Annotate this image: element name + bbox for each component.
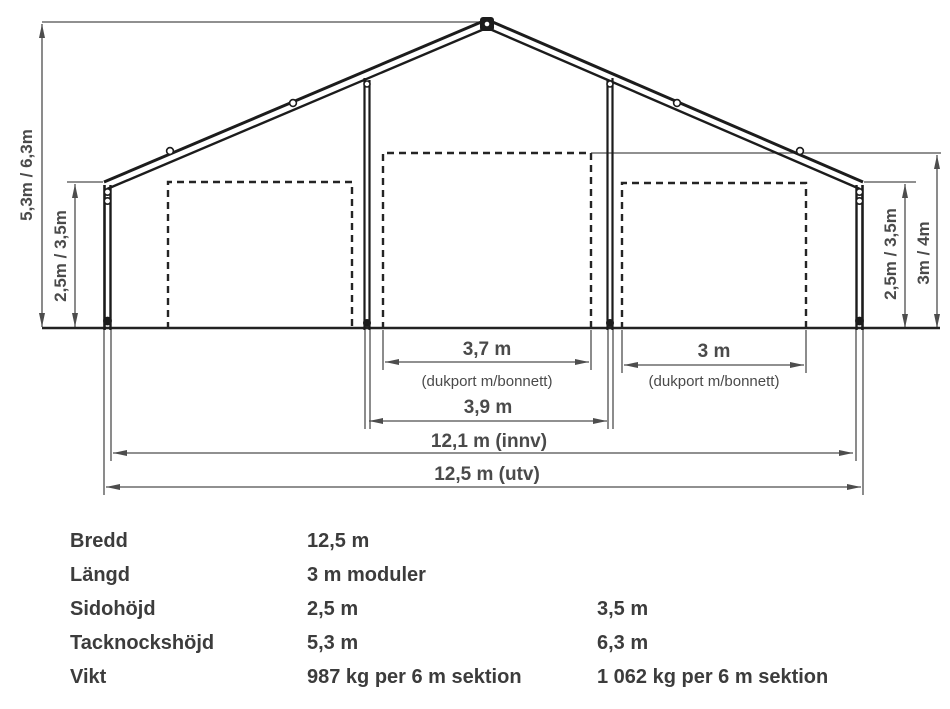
bolt-icon [856,198,862,204]
spec-row-langd: Längd 3 m moduler [70,558,950,592]
dim-label-side-height-left: 2,5m / 3,5m [51,210,70,302]
dim-label-door-height-right: 3m / 4m [914,221,933,284]
base-joint-icon [364,320,370,326]
base-joint-icon [856,317,863,324]
truss-frame [104,17,863,330]
dim-label-ridge-height: 5,3m / 6,3m [17,129,36,221]
spec-value-secondary: 1 062 kg per 6 m sektion [597,660,950,694]
right-wall-post [857,185,863,330]
spec-value-primary: 3 m moduler [307,558,597,592]
dim-label-inner-width: 12,1 m (innv) [431,431,547,452]
ridge-joint [480,17,494,31]
left-interior-post [365,78,370,330]
left-wall-post [105,185,111,330]
spec-row-bredd: Bredd 12,5 m [70,524,950,558]
right-door-opening [622,183,806,329]
spec-label: Längd [70,558,307,592]
spec-value-primary: 12,5 m [307,524,597,558]
center-door-opening [383,153,591,329]
bolt-icon [364,81,370,87]
spec-label: Bredd [70,524,307,558]
spec-value-primary: 5,3 m [307,626,597,660]
bolt-icon [797,148,804,155]
right-interior-post [608,78,613,330]
bolt-icon [607,81,613,87]
dim-label-outer-width: 12,5 m (utv) [434,464,540,485]
spec-value-secondary: 6,3 m [597,626,950,660]
bolt-icon [674,100,681,107]
base-joint-icon [104,317,111,324]
bolt-icon [167,148,174,155]
base-joint-icon [607,320,613,326]
dim-label-side-height-right: 2,5m / 3,5m [881,208,900,300]
joint-bolts [104,81,863,326]
spec-row-sidohojd: Sidohöjd 2,5 m 3,5 m [70,592,950,626]
bolt-icon [856,189,862,195]
spec-value-primary: 987 kg per 6 m sektion [307,660,597,694]
dim-note-center-door: (dukport m/bonnett) [422,373,553,390]
spec-value-secondary [597,524,950,558]
spec-row-vikt: Vikt 987 kg per 6 m sektion 1 062 kg per… [70,660,950,694]
spec-label: Vikt [70,660,307,694]
tent-spec-sheet: 5,3m / 6,3m 2,5m / 3,5m 2,5m / 3,5m 3m /… [0,0,950,709]
door-openings [168,153,806,329]
left-door-opening [168,182,352,329]
spec-label: Tacknockshöjd [70,626,307,660]
spec-value-secondary [597,558,950,592]
spec-table: Bredd 12,5 m Längd 3 m moduler Sidohöjd … [70,524,950,694]
spec-label: Sidohöjd [70,592,307,626]
dim-label-bay-width: 3,9 m [464,397,513,418]
dim-note-right-door: (dukport m/bonnett) [649,373,780,390]
bolt-icon [104,198,110,204]
bolt-icon [290,100,297,107]
tent-cross-section-diagram: 5,3m / 6,3m 2,5m / 3,5m 2,5m / 3,5m 3m /… [0,0,950,505]
spec-value-primary: 2,5 m [307,592,597,626]
dim-label-center-door-width: 3,7 m [463,339,512,360]
spec-row-tacknockshojd: Tacknockshöjd 5,3 m 6,3 m [70,626,950,660]
spec-value-secondary: 3,5 m [597,592,950,626]
dim-label-right-door-width: 3 m [698,341,731,362]
bolt-icon [104,189,110,195]
extension-lines [42,22,941,495]
